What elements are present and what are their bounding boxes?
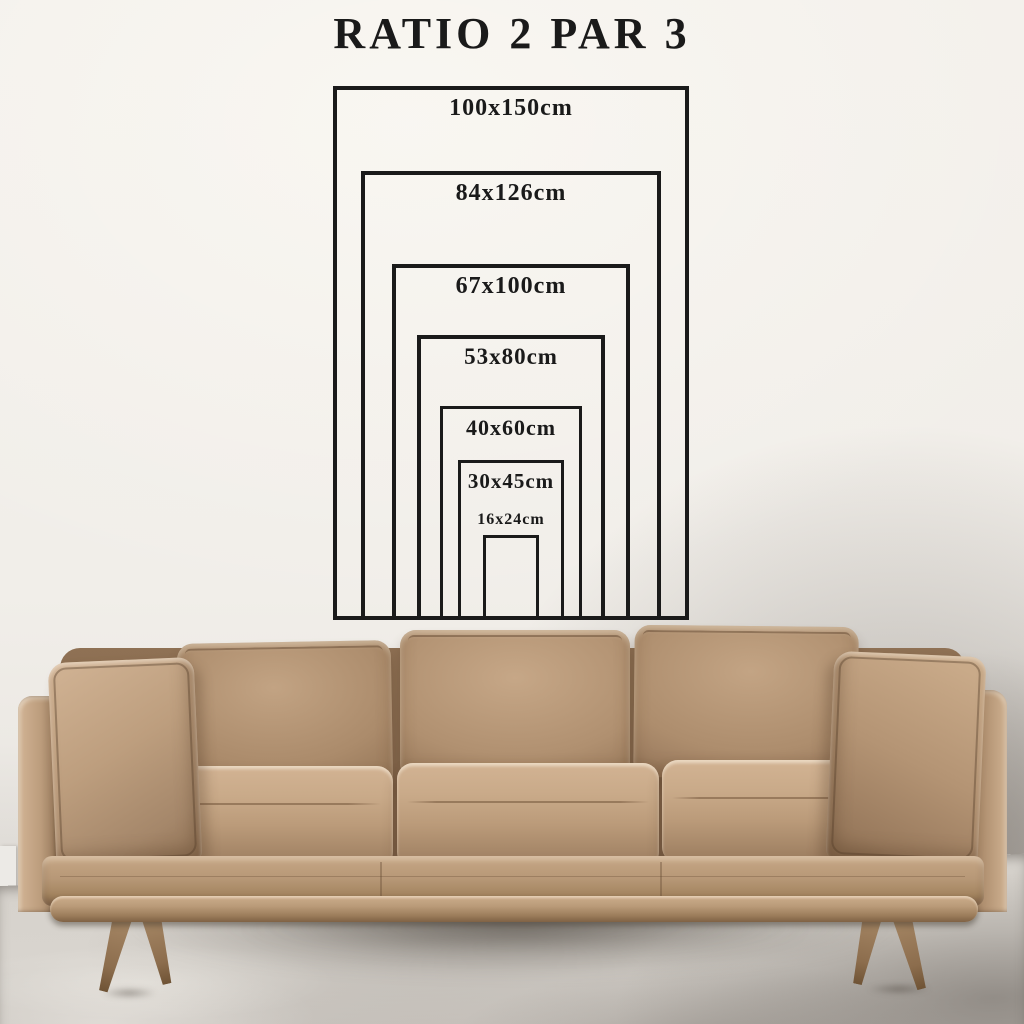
poster-size-guide-image: RATIO 2 PAR 3 100x150cm84x126cm67x100cm5… xyxy=(0,0,1024,1024)
leg-shadow xyxy=(856,982,942,996)
back-cushion-middle xyxy=(400,630,630,780)
seat-cushion-middle xyxy=(397,763,659,868)
sofa xyxy=(0,0,1024,1024)
left-arm-cushion xyxy=(48,657,203,867)
base-stitch-line xyxy=(60,876,965,877)
sofa-wood-rim xyxy=(50,896,978,922)
back-cushion-right xyxy=(633,625,859,779)
right-arm-cushion xyxy=(826,651,987,865)
